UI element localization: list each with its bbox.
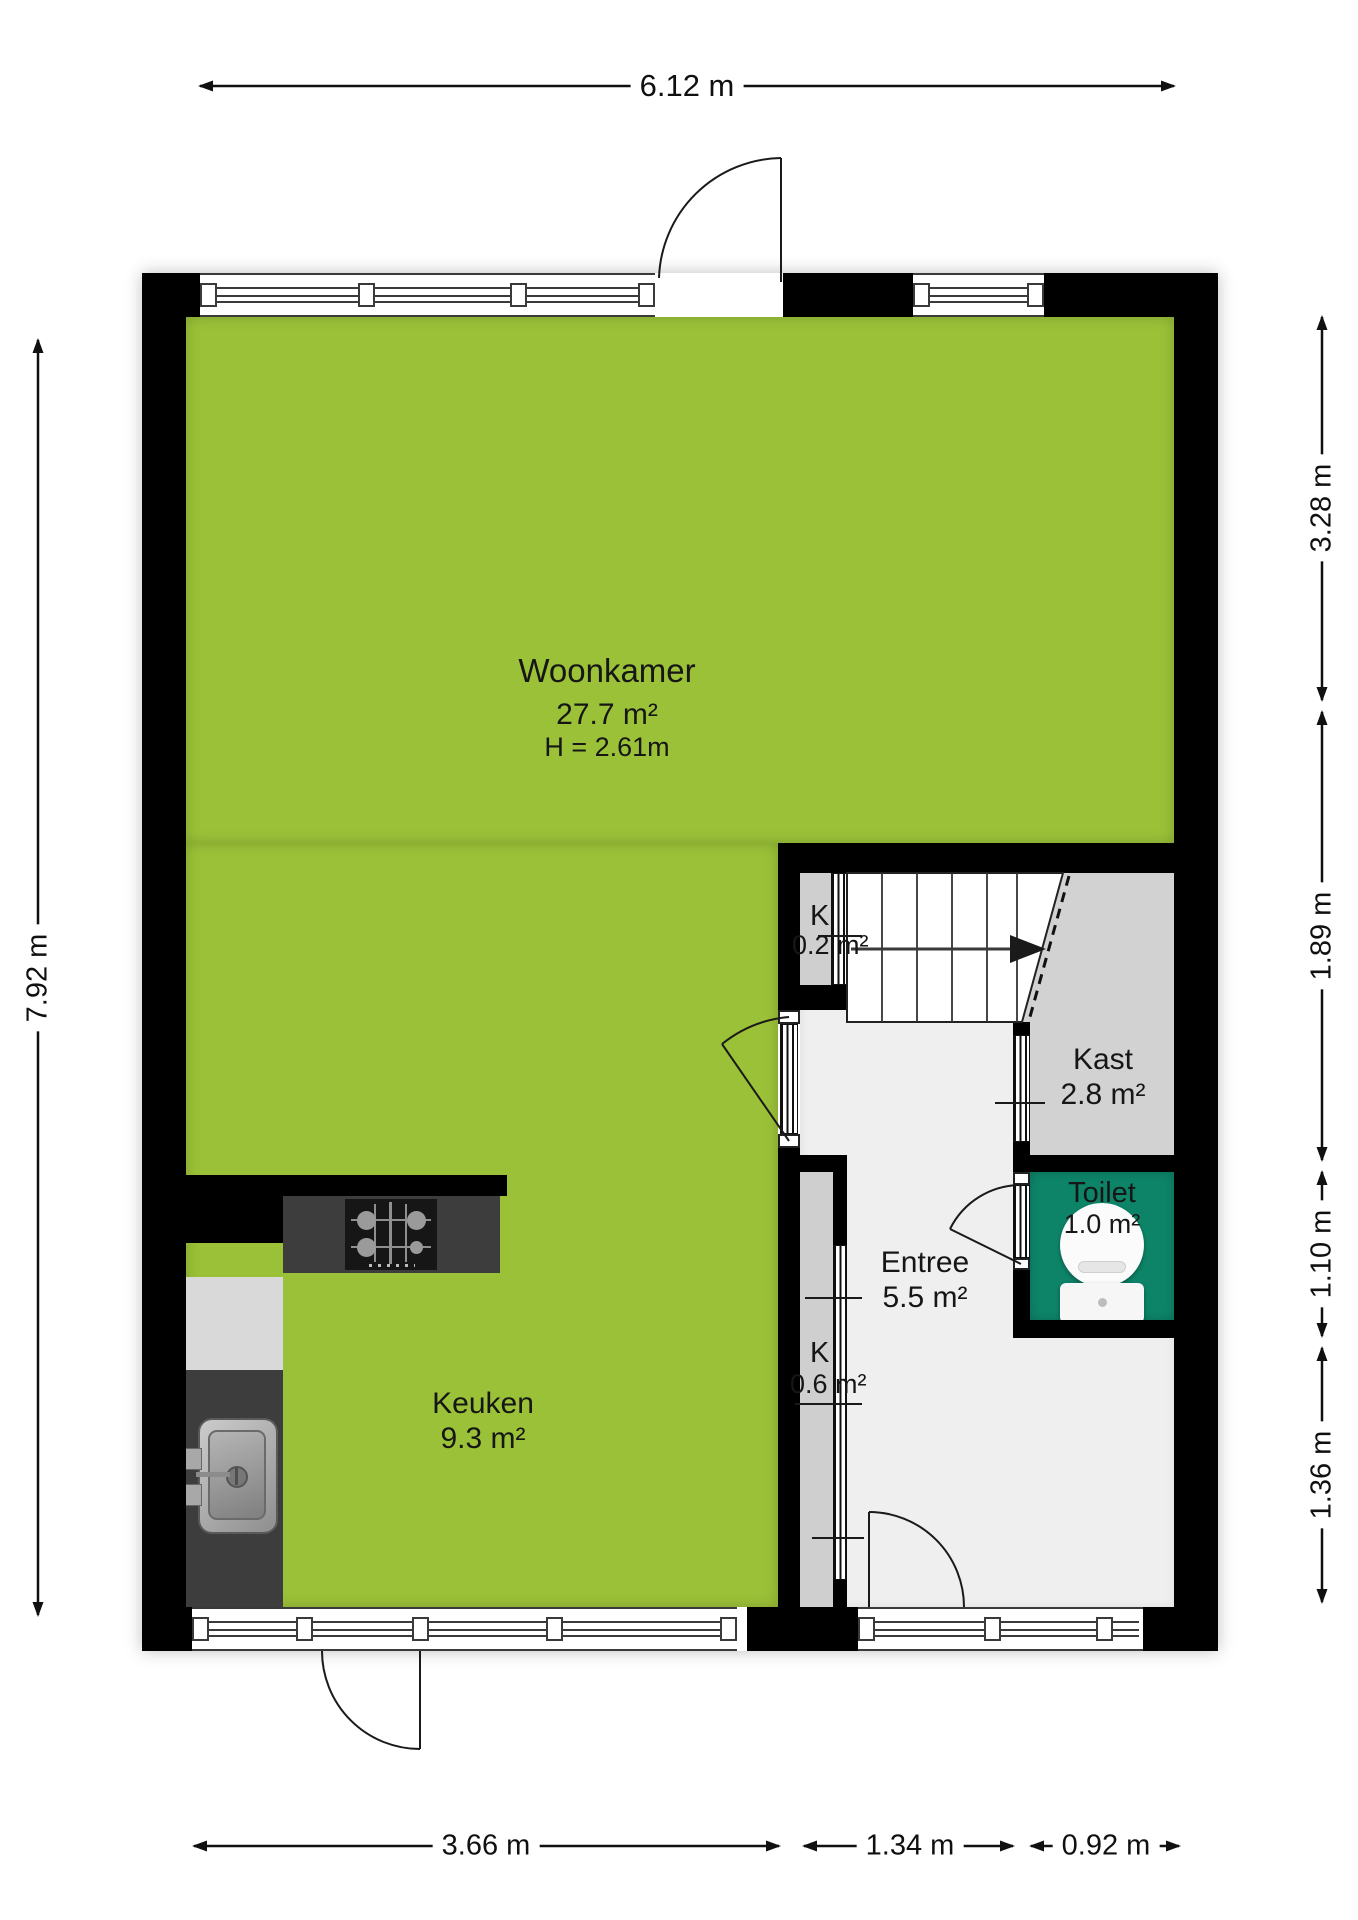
room-area: 1.0 m²	[1022, 1210, 1182, 1240]
room-name: K	[790, 1338, 886, 1370]
dim-label-bottom-3: 0.92 m	[1053, 1829, 1160, 1864]
room-area: 27.7 m²	[457, 697, 757, 732]
door-swing-arc	[322, 1651, 420, 1749]
room-area: 2.8 m²	[1023, 1077, 1183, 1112]
room-label-toilet: Toilet 1.0 m²	[1022, 1178, 1182, 1240]
door-leaf-line	[722, 1044, 789, 1141]
dim-label-right-1: 3.28 m	[1305, 455, 1340, 562]
room-name: Toilet	[1022, 1178, 1182, 1210]
room-area: 0.6 m²	[790, 1370, 886, 1400]
dim-label-bottom-1: 3.66 m	[433, 1829, 540, 1864]
room-area: 5.5 m²	[825, 1280, 1025, 1315]
room-area: 9.3 m²	[383, 1421, 583, 1456]
dim-label-top: 6.12 m	[631, 67, 744, 105]
dim-label-right-4: 1.36 m	[1305, 1422, 1340, 1529]
dim-label-bottom-2: 1.34 m	[857, 1829, 964, 1864]
room-label-closet-stairs: K 0.2 m²	[792, 901, 888, 960]
dim-label-right-2: 1.89 m	[1305, 883, 1340, 990]
room-label-closet-hall: K 0.6 m²	[790, 1338, 886, 1400]
room-name: Keuken	[383, 1386, 583, 1421]
room-area: 0.2 m²	[792, 931, 888, 959]
floorplan-canvas: Woonkamer 27.7 m² H = 2.61m Keuken 9.3 m…	[0, 0, 1358, 1920]
room-label-kast: Kast 2.8 m²	[1023, 1042, 1183, 1113]
door-swing-arc	[869, 1512, 964, 1607]
door-swing-arc	[659, 158, 781, 278]
linework-overlay	[0, 0, 1358, 1920]
dim-label-right-3: 1.10 m	[1305, 1201, 1340, 1308]
door-swing-arc	[722, 1017, 789, 1044]
room-label-entree: Entree 5.5 m²	[825, 1245, 1025, 1316]
room-name: K	[792, 901, 888, 931]
room-name: Entree	[825, 1245, 1025, 1280]
room-label-woonkamer: Woonkamer 27.7 m² H = 2.61m	[457, 652, 757, 764]
room-ceiling-height: H = 2.61m	[457, 732, 757, 764]
door-swing-arc	[950, 1185, 1021, 1229]
dim-label-left: 7.92 m	[21, 925, 56, 1032]
room-name: Kast	[1023, 1042, 1183, 1077]
room-label-keuken: Keuken 9.3 m²	[383, 1386, 583, 1457]
room-name: Woonkamer	[457, 652, 757, 691]
